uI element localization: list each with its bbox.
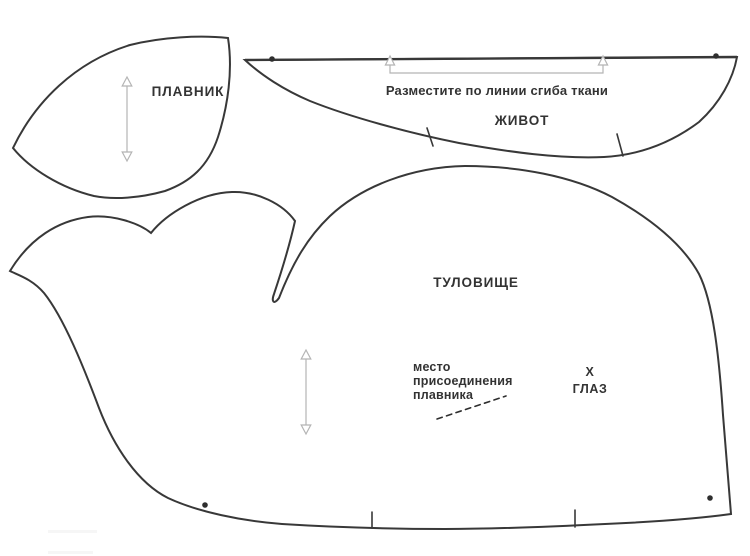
fin-attachment-note-line3: плавника <box>413 388 474 402</box>
body-outline <box>10 166 731 529</box>
fin-piece: ПЛАВНИК <box>13 37 230 198</box>
fold-instruction-label: Разместите по линии сгиба ткани <box>386 83 608 98</box>
match-dot <box>707 495 713 501</box>
fin-outline <box>13 37 230 198</box>
fold-bracket-line <box>390 64 603 73</box>
pattern-canvas: ПЛАВНИК Разместите по линии сгиба ткани … <box>0 0 750 556</box>
sewing-pattern-sheet: ПЛАВНИК Разместите по линии сгиба ткани … <box>0 0 750 556</box>
scan-artifact <box>48 551 93 554</box>
belly-piece: Разместите по линии сгиба ткани ЖИВОТ <box>245 53 737 157</box>
fin-label: ПЛАВНИК <box>152 84 225 99</box>
eye-cross-marker: Х <box>586 365 595 379</box>
body-label: ТУЛОВИЩЕ <box>433 275 519 290</box>
eye-label: ГЛАЗ <box>573 382 608 396</box>
belly-label: ЖИВОТ <box>494 113 550 128</box>
scan-artifact <box>48 530 97 533</box>
fin-attachment-note-line1: место <box>413 360 451 374</box>
body-piece: ТУЛОВИЩЕ место присоединения плавника Х … <box>10 166 731 529</box>
match-dot <box>269 56 275 62</box>
match-dot <box>202 502 208 508</box>
match-dot <box>713 53 719 59</box>
fin-attachment-note-line2: присоединения <box>413 374 513 388</box>
